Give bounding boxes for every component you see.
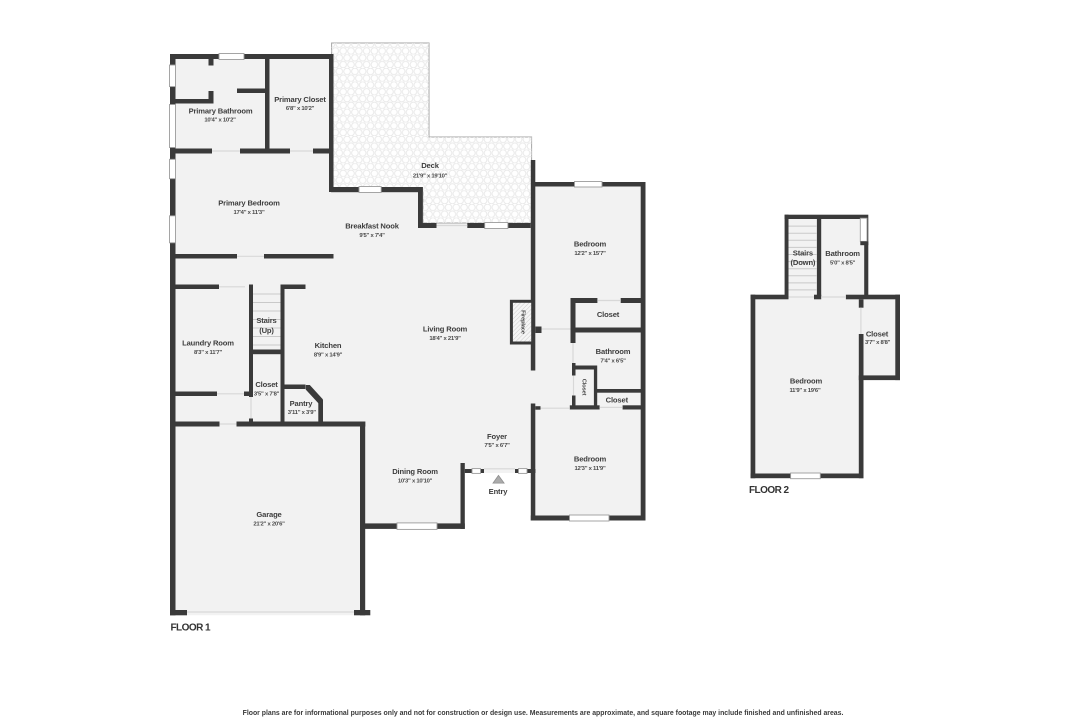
svg-text:Bedroom: Bedroom: [790, 377, 823, 386]
svg-text:7'5" x 6'7": 7'5" x 6'7": [484, 443, 510, 449]
svg-text:Closet: Closet: [255, 380, 278, 389]
svg-text:Pantry: Pantry: [290, 399, 314, 408]
svg-text:7'4" x 6'5": 7'4" x 6'5": [600, 359, 626, 365]
svg-text:21'2" x 20'6": 21'2" x 20'6": [253, 522, 285, 528]
svg-text:Fireplace: Fireplace: [520, 310, 526, 335]
svg-text:Bathroom: Bathroom: [825, 249, 860, 258]
svg-text:Breakfast Nook: Breakfast Nook: [345, 222, 400, 231]
svg-text:Entry: Entry: [489, 487, 509, 496]
svg-text:FLOOR 1: FLOOR 1: [171, 623, 211, 634]
svg-text:Closet: Closet: [866, 329, 889, 338]
svg-text:12'2" x 15'7": 12'2" x 15'7": [574, 251, 606, 257]
svg-text:Deck: Deck: [421, 161, 439, 170]
svg-text:17'4" x 11'3": 17'4" x 11'3": [233, 210, 264, 216]
svg-text:Bedroom: Bedroom: [574, 240, 607, 249]
svg-text:Stairs: Stairs: [256, 316, 276, 325]
svg-text:3'11" x 3'9": 3'11" x 3'9": [288, 410, 316, 416]
svg-text:3'7" x 8'8": 3'7" x 8'8": [865, 340, 891, 346]
svg-text:9'5" x 7'4": 9'5" x 7'4": [359, 233, 385, 239]
svg-text:12'3" x 11'9": 12'3" x 11'9": [574, 466, 605, 472]
svg-text:Living Room: Living Room: [423, 325, 468, 334]
svg-text:21'9" x 19'10": 21'9" x 19'10": [413, 174, 448, 180]
svg-text:5'0" x 8'5": 5'0" x 8'5": [830, 261, 856, 267]
svg-text:3'5" x 7'8": 3'5" x 7'8": [254, 392, 280, 398]
svg-text:(Up): (Up): [259, 326, 274, 335]
svg-text:Kitchen: Kitchen: [315, 341, 342, 350]
svg-text:8'3" x 11'7": 8'3" x 11'7": [194, 350, 222, 356]
svg-text:Closet: Closet: [581, 379, 587, 396]
svg-text:Primary Bathroom: Primary Bathroom: [189, 107, 253, 116]
svg-text:Laundry Room: Laundry Room: [182, 339, 234, 348]
svg-text:8'9" x 14'9": 8'9" x 14'9": [314, 353, 343, 359]
svg-text:Bathroom: Bathroom: [596, 347, 631, 356]
svg-text:Floor plans are for informatio: Floor plans are for informational purpos…: [243, 710, 844, 717]
svg-text:Stairs: Stairs: [793, 249, 813, 258]
svg-text:Garage: Garage: [256, 510, 281, 519]
svg-text:10'4" x 10'2": 10'4" x 10'2": [204, 118, 236, 124]
svg-text:Closet: Closet: [597, 310, 620, 319]
svg-text:Primary Bedroom: Primary Bedroom: [218, 199, 280, 208]
svg-text:10'3" x 10'10": 10'3" x 10'10": [398, 478, 433, 484]
svg-text:FLOOR 2: FLOOR 2: [749, 485, 789, 496]
svg-text:(Down): (Down): [790, 258, 815, 267]
svg-text:Dining Room: Dining Room: [392, 467, 438, 476]
svg-text:Foyer: Foyer: [487, 432, 507, 441]
svg-text:18'4" x 21'9": 18'4" x 21'9": [429, 336, 461, 342]
svg-text:Bedroom: Bedroom: [574, 455, 607, 464]
svg-text:6'8" x 10'2": 6'8" x 10'2": [286, 106, 315, 112]
svg-text:11'9" x 19'6": 11'9" x 19'6": [789, 388, 820, 394]
svg-text:Primary Closet: Primary Closet: [274, 95, 326, 104]
svg-text:Closet: Closet: [606, 396, 629, 405]
